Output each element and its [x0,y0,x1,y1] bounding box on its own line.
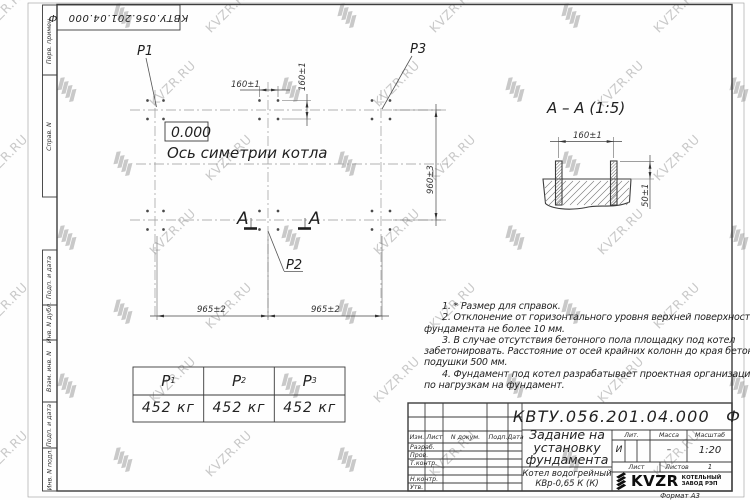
dim-span-right: 965±2 [311,305,340,315]
load-point-label-p3: P3 [410,42,426,57]
anchor-bolt-dots [146,99,391,231]
plan-centerlines [130,82,448,318]
load-point-label-p2: P2 [286,258,302,273]
section-view-geometry [543,137,654,209]
margin-stamp-boxes [43,5,58,491]
bolt-dot [146,228,149,231]
dim-bolt-x: 160±1 [231,80,260,90]
bolt-dot [162,228,165,231]
section-cut-marks [244,218,311,229]
bolt-dot [277,210,280,213]
bolt-dot [258,210,261,213]
corner-stamp-box [57,5,180,30]
bolt-dot [146,210,149,213]
dim-section-protrusion: 50±1 [641,184,651,207]
bolt-dot [277,118,280,121]
bolt-dot [389,210,392,213]
bolt-dot [146,99,149,102]
axis-of-symmetry-label: Ось симетрии котла [167,144,327,162]
bolt-dot [277,228,280,231]
dim-span-left: 965±2 [197,305,226,315]
bolt-dot [162,99,165,102]
drawing-sheet: KVZR.RUKVZR.RUKVZR.RUKVZR.RUKVZR.RUKVZR.… [0,0,750,500]
title-block-grid [408,403,732,491]
bolt-dot [258,99,261,102]
bolt-dot [389,118,392,121]
dim-section-bolt-spacing: 160±1 [573,131,602,141]
section-letter-left: A [236,209,249,229]
bolt-dot [371,118,374,121]
bolt-dot [277,99,280,102]
dimension-arrows [157,89,651,318]
bolt-dot [258,118,261,121]
load-point-label-p1: P1 [137,44,153,59]
section-view-title: A – A (1:5) [546,99,625,117]
sheet-edge [28,3,744,497]
elevation-value: 0.000 [171,125,211,141]
bolt-dot [258,228,261,231]
bolt-dot [389,228,392,231]
plan-dimensions [150,86,441,320]
bolt-dot [371,210,374,213]
drawing-linework: P1 P2 P3 0.000 Ось симетрии котла A A 16… [0,0,750,500]
bolt-dot [146,118,149,121]
section-letter-right: A [308,209,321,229]
bolt-dot [371,99,374,102]
bolt-dot [162,210,165,213]
load-table-grid [133,367,345,422]
bolt-dot [162,118,165,121]
drawing-frame [57,5,732,492]
dim-bolt-y: 160±1 [298,62,308,91]
bolt-dot [389,99,392,102]
dim-height: 960±3 [426,165,436,194]
bolt-dot [371,228,374,231]
